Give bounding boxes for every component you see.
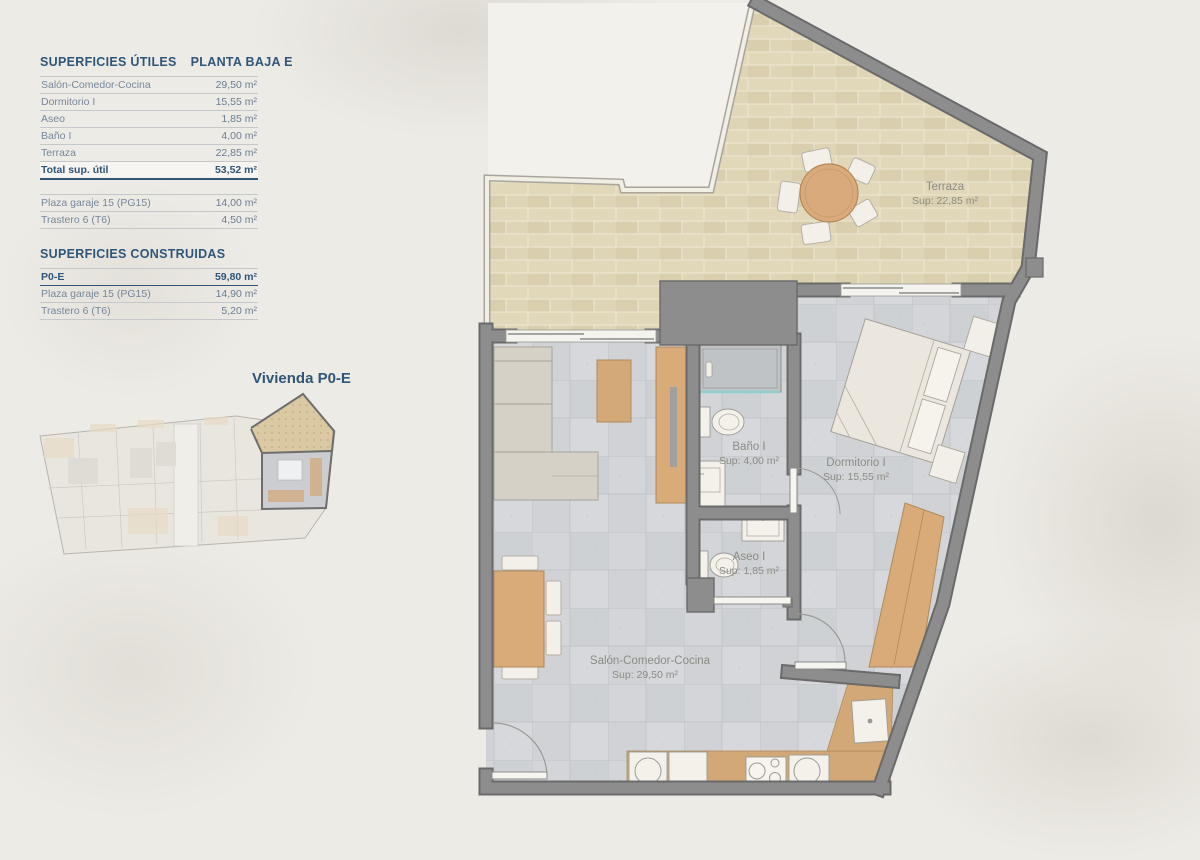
aseo-door-leaf <box>714 597 791 604</box>
room-label-bano: Baño I <box>732 441 765 453</box>
second-sink <box>852 699 889 743</box>
room-area-dormitorio: Sup: 15,55 m² <box>823 471 889 483</box>
room-label-terraza: Terraza <box>926 181 965 193</box>
room-area-salon: Sup: 29,50 m² <box>612 669 678 681</box>
wall-chunk <box>687 578 714 612</box>
room-label-salon: Salón-Comedor-Cocina <box>590 655 711 667</box>
dining-table <box>494 571 544 667</box>
wall-notch <box>1026 258 1043 277</box>
room-label-dormitorio: Dormitorio I <box>826 457 885 469</box>
tv-unit <box>656 347 688 503</box>
coffee-table <box>597 360 631 422</box>
room-area-aseo: Sup: 1,85 m² <box>719 565 780 577</box>
wall-chunk <box>660 281 797 345</box>
shower <box>699 345 781 392</box>
bathroom-sink <box>697 461 725 507</box>
bedroom-window <box>841 284 961 296</box>
room-label-aseo: Aseo I <box>733 551 766 563</box>
toilet <box>697 407 744 437</box>
room-area-bano: Sup: 4,00 m² <box>719 455 780 467</box>
room-area-terraza: Sup: 22,85 m² <box>912 195 978 207</box>
round-table <box>800 164 858 222</box>
void-area <box>488 3 753 189</box>
floor-plan: Terraza Sup: 22,85 m² Dormitorio I Sup: … <box>0 0 1200 800</box>
living-room-window <box>506 330 656 342</box>
